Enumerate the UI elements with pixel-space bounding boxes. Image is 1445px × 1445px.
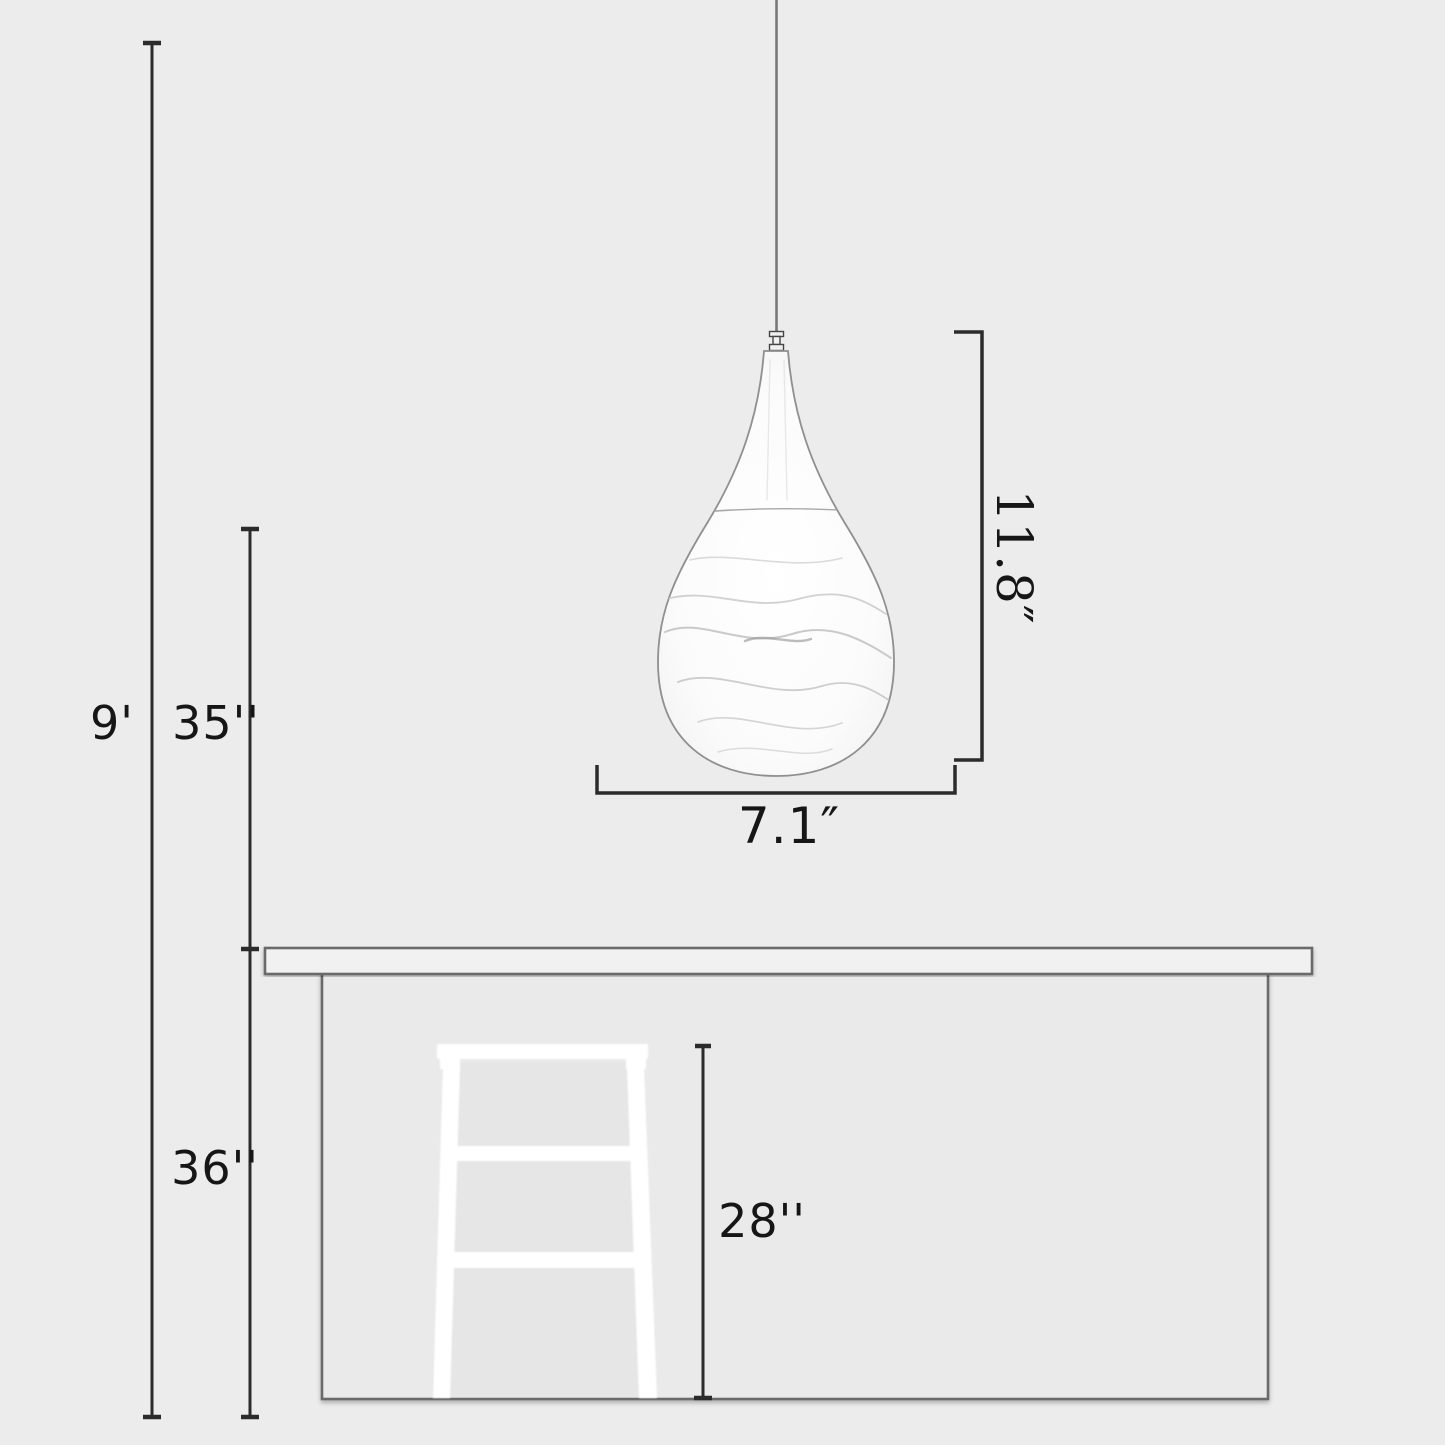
lamp-and-counter-height-line [241, 529, 259, 1417]
shade-width-label: 7.1″ [738, 797, 840, 855]
lamp-shade [658, 351, 894, 776]
stool-upper-rail [454, 1146, 634, 1161]
stool-shadow [432, 1062, 656, 1397]
shade-height-label: 11.8″ [985, 489, 1043, 624]
shade-height-bracket [954, 332, 982, 760]
cord-ferrule [770, 332, 784, 351]
counter-height-label: 36'' [171, 1141, 259, 1195]
ceiling-height-line [143, 43, 161, 1417]
stool [432, 1044, 657, 1398]
pendant-lamp [658, 0, 894, 776]
counter-top [265, 948, 1312, 974]
ceiling-drop-label: 9' [90, 696, 134, 750]
dimension-diagram: 9' 35'' 36'' 28'' 7.1″ 11.8″ [0, 0, 1445, 1445]
stool-height-label: 28'' [718, 1194, 806, 1248]
stool-lower-rail [449, 1252, 642, 1268]
stool-seat [437, 1044, 648, 1059]
lamp-to-counter-label: 35'' [172, 696, 260, 750]
counter [265, 948, 1312, 1399]
